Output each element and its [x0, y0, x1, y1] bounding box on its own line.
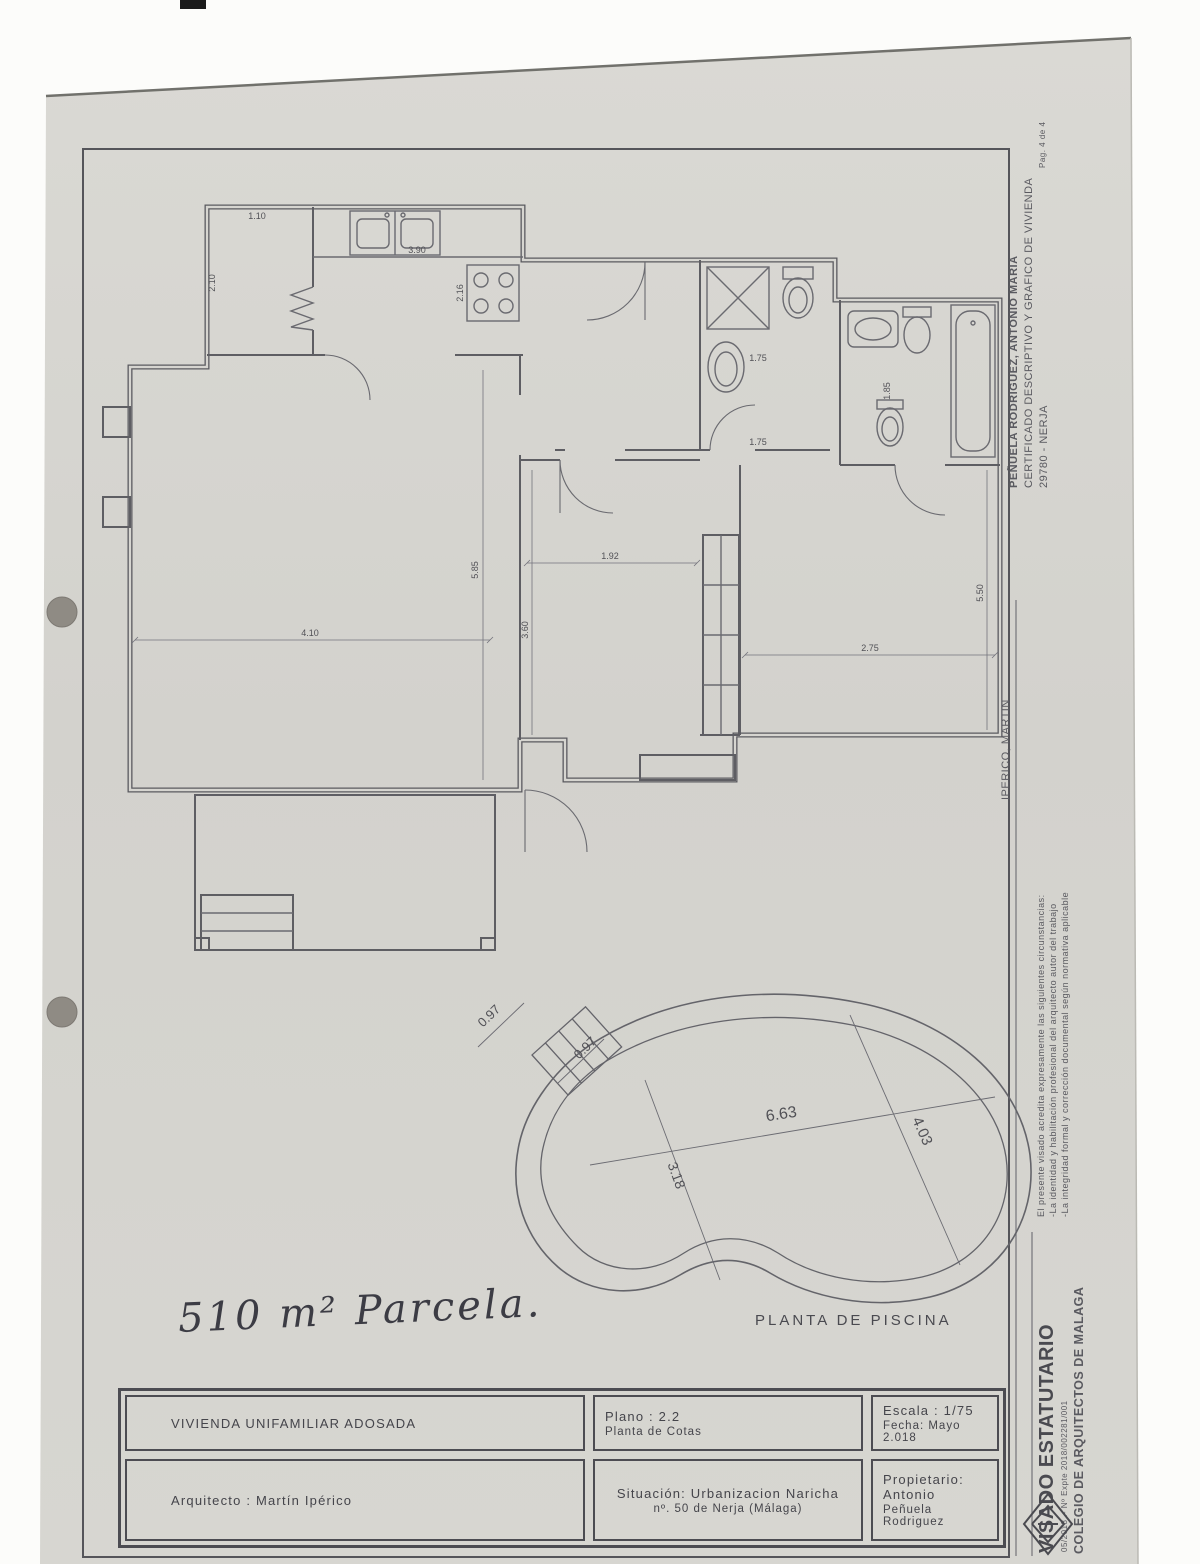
scan-artifact — [180, 0, 206, 9]
architect-margin-text: IPERICO, MARTIN — [1000, 595, 1012, 800]
pool-dim-label: 4.03 — [908, 1114, 935, 1148]
pool-dim-label: 0.97 — [475, 1002, 504, 1030]
titleblock-plano-cell: Plano : 2.2 Planta de Cotas — [593, 1395, 863, 1451]
titleblock-project-cell: VIVIENDA UNIFAMILIAR ADOSADA — [125, 1395, 585, 1451]
plano-number: Plano : 2.2 — [605, 1409, 851, 1424]
window-bay — [103, 497, 130, 527]
titleblock-situacion-cell: Situación: Urbanizacion Naricha nº. 50 d… — [593, 1459, 863, 1541]
owner-line2: Peñuela Rodriguez — [883, 1504, 987, 1528]
outer-walls — [130, 207, 1000, 790]
date-value: Fecha: Mayo 2.018 — [883, 1420, 987, 1444]
titleblock-architect-cell: Arquitecto : Martín Ipérico — [125, 1459, 585, 1541]
dim-label: 5.50 — [975, 584, 985, 602]
pool-plan-drawing: 0.97 0.97 6.63 4.03 3.18 — [440, 985, 1040, 1315]
city-margin-text: 29780 - NERJA — [1038, 168, 1050, 488]
bidet — [903, 307, 931, 353]
washbasin — [848, 311, 898, 347]
pool-dim-label: 3.18 — [665, 1160, 689, 1191]
dim-label: 1.10 — [248, 211, 266, 221]
dim-label: 3.90 — [408, 245, 426, 255]
certificate-margin-text: CERTIFICADO DESCRIPTIVO Y GRAFICO DE VIV… — [1023, 168, 1035, 488]
visado-clause-1: El presente visado acredita expresamente… — [1036, 805, 1046, 1217]
titleblock-escala-cell: Escala : 1/75 Fecha: Mayo 2.018 — [871, 1395, 999, 1451]
window-bay — [103, 407, 130, 437]
visado-clause-2: -La identidad y habilitación profesional… — [1048, 805, 1058, 1217]
folding-door — [291, 287, 313, 330]
scale-value: Escala : 1/75 — [883, 1403, 987, 1418]
titleblock-owner-cell: Propietario: Antonio Peñuela Rodriguez — [871, 1459, 999, 1541]
visado-clause-3: -La integridad formal y corrección docum… — [1060, 805, 1070, 1217]
dim-label: 3.60 — [520, 621, 530, 639]
wardrobe — [703, 535, 739, 735]
owner-line1: Propietario: Antonio — [883, 1472, 987, 1502]
stove — [467, 265, 519, 321]
owner-margin-text: PEÑUELA RODRIGUEZ, ANTONIO MARIA — [1008, 168, 1020, 488]
stamp-organization: COLEGIO DE ARQUITECTOS DE MALAGA — [1072, 1228, 1086, 1554]
site-line1: Situación: Urbanizacion Naricha — [605, 1486, 851, 1501]
dim-label: 2.16 — [455, 284, 465, 302]
floor-plan-drawing: 1.10 2.10 3.90 2.16 4.10 5.85 1.92 3.60 … — [95, 195, 1010, 985]
toilet — [783, 267, 813, 318]
dim-label: 2.75 — [861, 643, 879, 653]
hole-punch — [47, 597, 77, 627]
plano-subtitle: Planta de Cotas — [605, 1426, 851, 1438]
title-block: VIVIENDA UNIFAMILIAR ADOSADA Plano : 2.2… — [118, 1388, 1006, 1548]
pool-dim-label: 6.63 — [765, 1104, 799, 1126]
terrace — [195, 795, 495, 950]
colegio-logo — [1022, 1492, 1074, 1556]
page-reference: Pag. 4 de 4 — [1038, 98, 1047, 168]
architect-name: Arquitecto : Martín Ipérico — [171, 1493, 573, 1508]
bathtub — [951, 305, 995, 457]
toilet — [877, 400, 903, 446]
door-arcs — [325, 262, 945, 852]
kitchen-sink — [350, 211, 440, 255]
pool-plan-title: PLANTA DE PISCINA — [755, 1312, 952, 1329]
site-line2: nº. 50 de Nerja (Málaga) — [605, 1503, 851, 1515]
porch-step — [640, 755, 735, 780]
project-title: VIVIENDA UNIFAMILIAR ADOSADA — [171, 1416, 573, 1431]
dim-label: 4.10 — [301, 628, 319, 638]
dim-label: 1.92 — [601, 551, 619, 561]
dimension-lines — [132, 370, 998, 780]
washbasin — [708, 342, 744, 392]
shower — [707, 267, 769, 329]
hole-punch — [47, 997, 77, 1027]
dim-label: 1.85 — [882, 382, 892, 400]
dim-label: 1.75 — [749, 353, 767, 363]
interior-walls — [207, 207, 1000, 740]
dim-label: 2.10 — [207, 274, 217, 292]
dim-label: 1.75 — [749, 437, 767, 447]
dim-label: 5.85 — [470, 561, 480, 579]
